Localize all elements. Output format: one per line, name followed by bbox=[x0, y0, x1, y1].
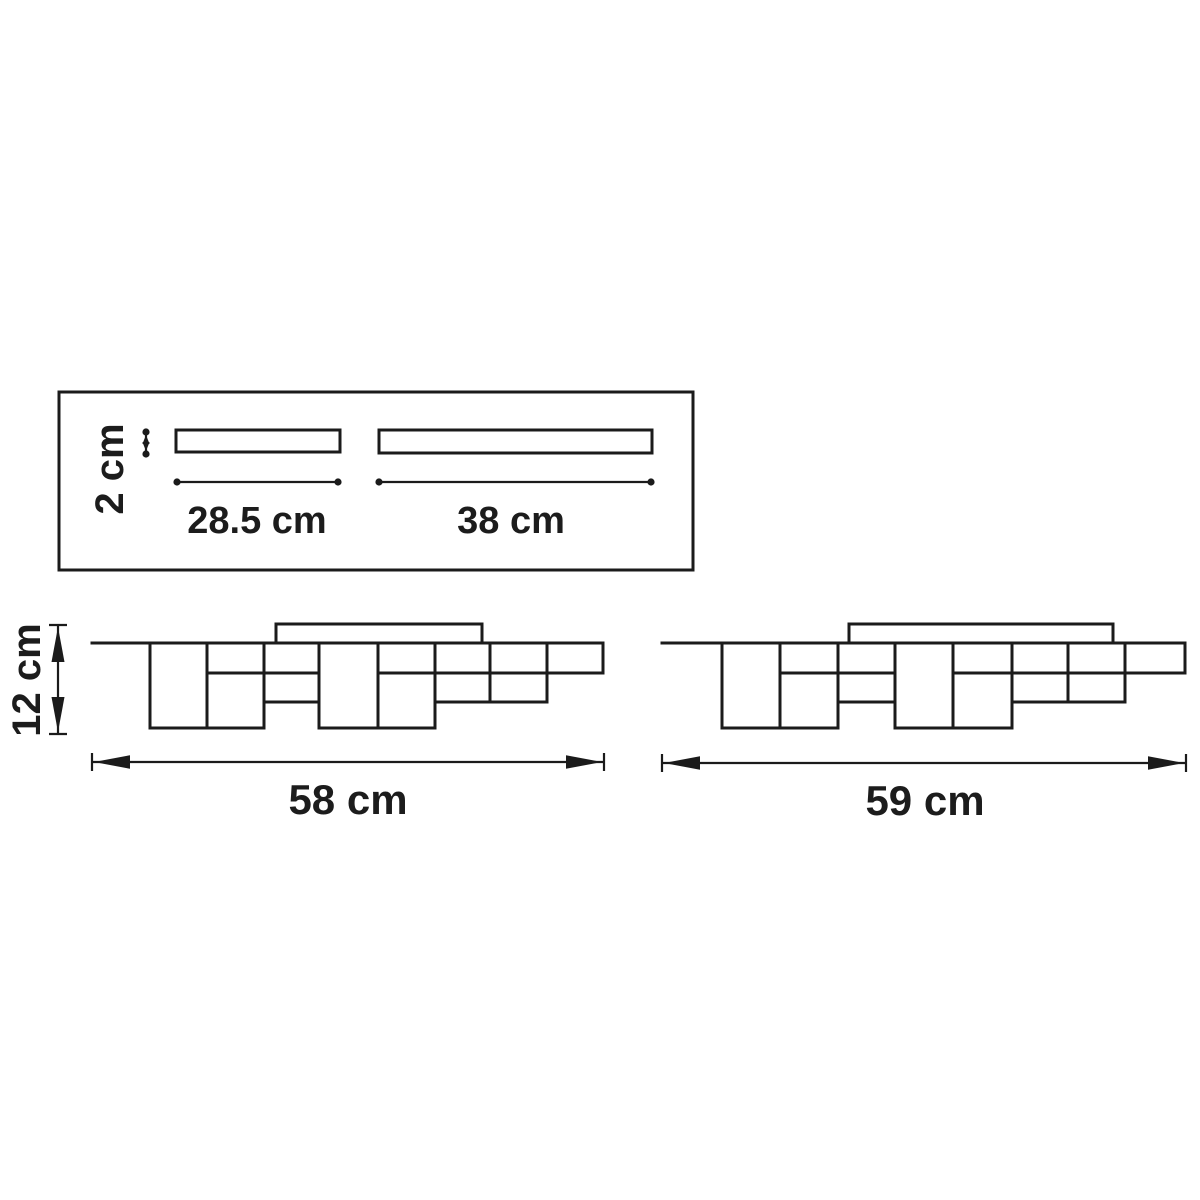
body-blocks bbox=[150, 643, 603, 728]
dimension-diagram: 2 cm 28.5 cm 38 cm bbox=[0, 0, 1200, 1200]
height-dimension bbox=[49, 625, 67, 734]
arrow-up-icon bbox=[52, 627, 65, 662]
body-blocks bbox=[722, 643, 1185, 728]
arrow-right-icon bbox=[1148, 756, 1184, 770]
plate-long-length-label: 38 cm bbox=[457, 500, 565, 542]
arrow-left-icon bbox=[664, 756, 700, 770]
plate-long-length-dimension bbox=[375, 478, 654, 485]
diagram-canvas: 2 cm 28.5 cm 38 cm bbox=[0, 0, 1200, 1200]
width-label-right: 59 cm bbox=[865, 777, 984, 824]
arrow-down-icon bbox=[52, 697, 65, 732]
mount-plates-panel: 2 cm 28.5 cm 38 cm bbox=[59, 392, 693, 570]
height-label: 12 cm bbox=[5, 623, 49, 736]
plate-height-dimension bbox=[142, 428, 149, 457]
width-dimension-left bbox=[92, 753, 604, 771]
mount-plate-long bbox=[379, 430, 652, 453]
arrow-right-icon bbox=[566, 755, 602, 769]
canopy bbox=[849, 624, 1113, 643]
plate-height-label: 2 cm bbox=[88, 423, 132, 514]
fixture-side-view-left: 12 cm 58 cm bbox=[5, 623, 604, 823]
plate-short-length-label: 28.5 cm bbox=[187, 500, 326, 542]
width-dimension-right bbox=[662, 754, 1186, 772]
canopy bbox=[276, 624, 482, 643]
plate-short-length-dimension bbox=[173, 478, 341, 485]
mount-plate-short bbox=[176, 430, 340, 452]
fixture-side-view-right: 59 cm bbox=[662, 624, 1186, 824]
width-label-left: 58 cm bbox=[288, 776, 407, 823]
arrow-left-icon bbox=[94, 755, 130, 769]
